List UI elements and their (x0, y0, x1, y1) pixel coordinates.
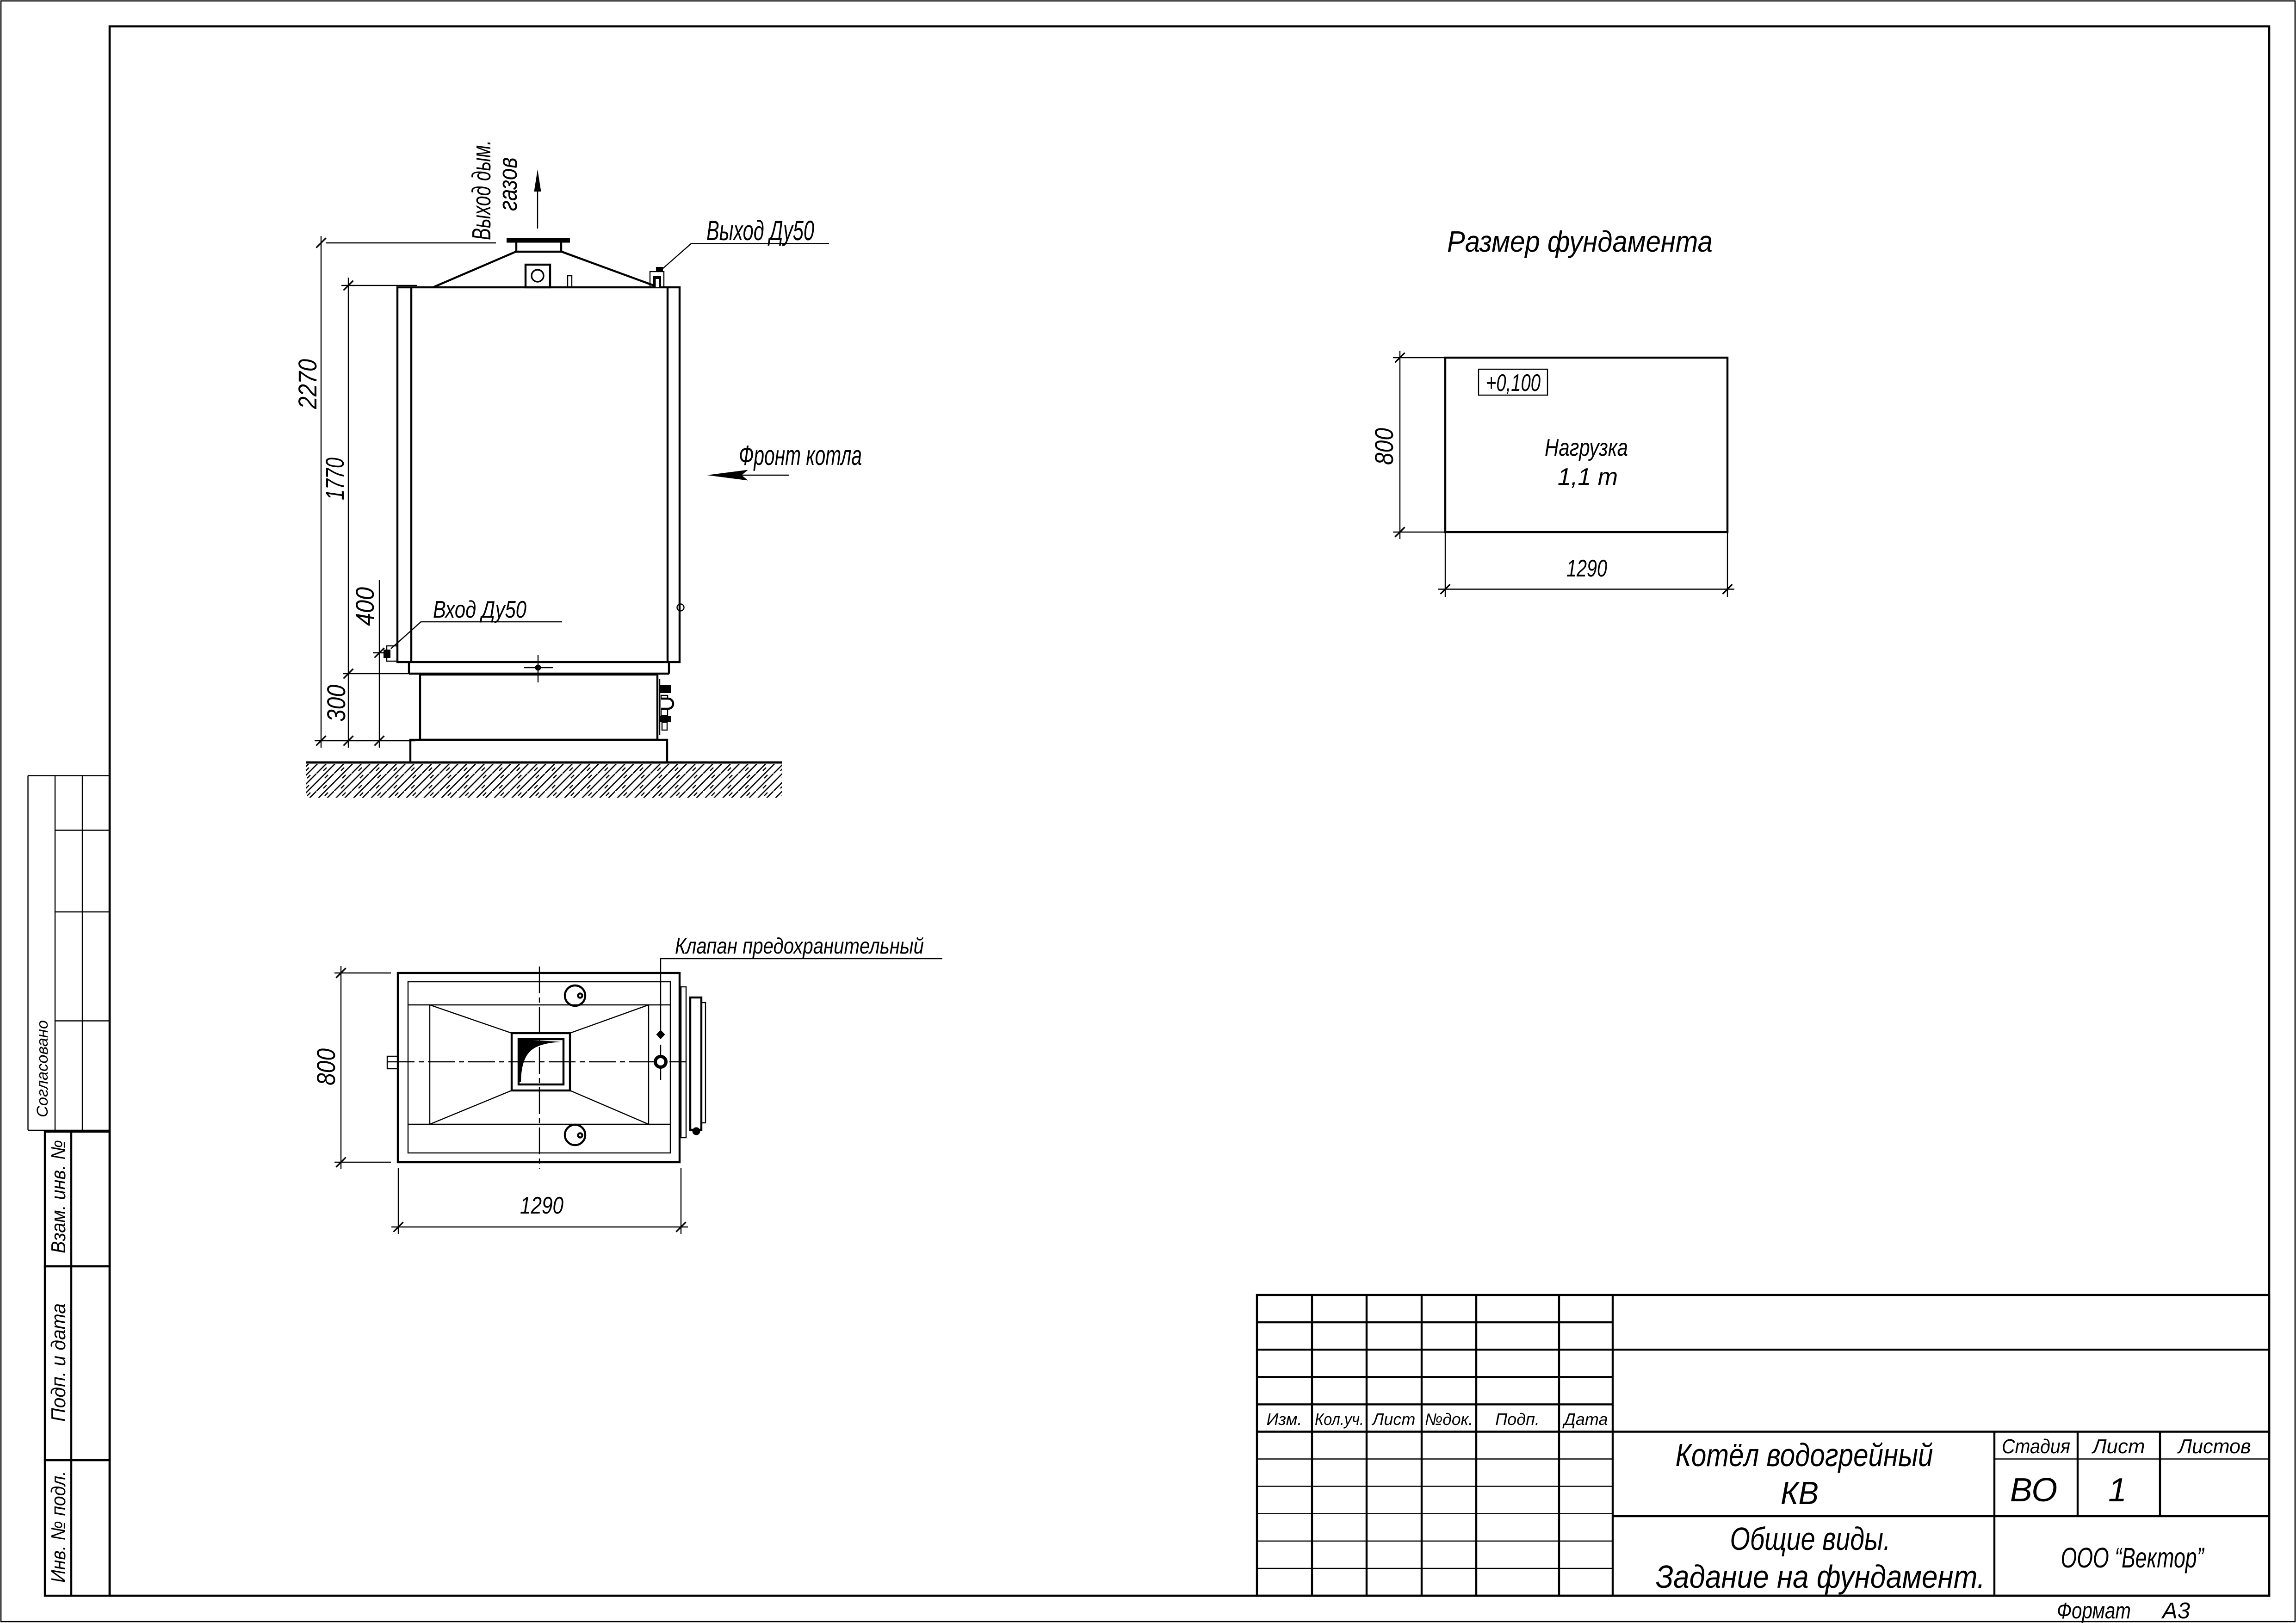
svg-text:Котёл водогрейный: Котёл водогрейный (1676, 1437, 1933, 1473)
svg-text:ВО: ВО (2010, 1472, 2057, 1509)
svg-text:800: 800 (311, 1048, 340, 1085)
svg-text:800: 800 (1369, 428, 1399, 465)
svg-text:1290: 1290 (520, 1192, 563, 1219)
svg-text:+0,100: +0,100 (1486, 370, 1541, 396)
svg-text:1: 1 (2108, 1472, 2127, 1509)
svg-text:Выход Ду50: Выход Ду50 (706, 215, 814, 246)
svg-text:300: 300 (322, 685, 351, 722)
svg-text:Клапан предохранительный: Клапан предохранительный (675, 934, 924, 959)
svg-text:№док.: №док. (1425, 1410, 1473, 1429)
svg-text:Фронт котла: Фронт котла (739, 440, 862, 471)
svg-text:Инв. № подл.: Инв. № подл. (47, 1471, 70, 1583)
svg-text:1290: 1290 (1566, 555, 1607, 582)
svg-text:Листов: Листов (2177, 1435, 2251, 1458)
svg-text:1,1 т: 1,1 т (1558, 464, 1618, 490)
svg-text:Изм.: Изм. (1267, 1410, 1302, 1429)
svg-text:газов: газов (493, 157, 523, 211)
svg-text:ООО “Вектор”: ООО “Вектор” (2061, 1542, 2205, 1573)
svg-text:Выход дым.: Выход дым. (467, 140, 496, 240)
svg-text:400: 400 (350, 587, 379, 626)
svg-text:Лист: Лист (2091, 1435, 2145, 1458)
svg-text:А3: А3 (2161, 1598, 2190, 1623)
svg-text:Формат: Формат (2057, 1598, 2131, 1623)
svg-text:Кол.уч.: Кол.уч. (1315, 1410, 1364, 1429)
svg-text:Взам. инв. №: Взам. инв. № (47, 1140, 70, 1253)
svg-text:Лист: Лист (1372, 1410, 1416, 1429)
svg-text:2270: 2270 (293, 359, 322, 409)
svg-text:КВ: КВ (1781, 1475, 1819, 1511)
svg-text:Задание на фундамент.: Задание на фундамент. (1656, 1559, 1985, 1595)
svg-text:Согласовано: Согласовано (34, 1020, 51, 1117)
svg-text:Вход Ду50: Вход Ду50 (433, 596, 526, 623)
svg-text:Стадия: Стадия (2002, 1435, 2070, 1458)
svg-text:Нагрузка: Нагрузка (1545, 434, 1628, 461)
svg-text:1770: 1770 (320, 458, 349, 500)
svg-text:Размер фундамента: Размер фундамента (1447, 225, 1713, 258)
svg-text:Подп. и дата: Подп. и дата (47, 1303, 70, 1422)
svg-text:Дата: Дата (1562, 1410, 1608, 1429)
svg-text:Подп.: Подп. (1495, 1410, 1540, 1429)
svg-text:Общие виды.: Общие виды. (1730, 1521, 1891, 1557)
